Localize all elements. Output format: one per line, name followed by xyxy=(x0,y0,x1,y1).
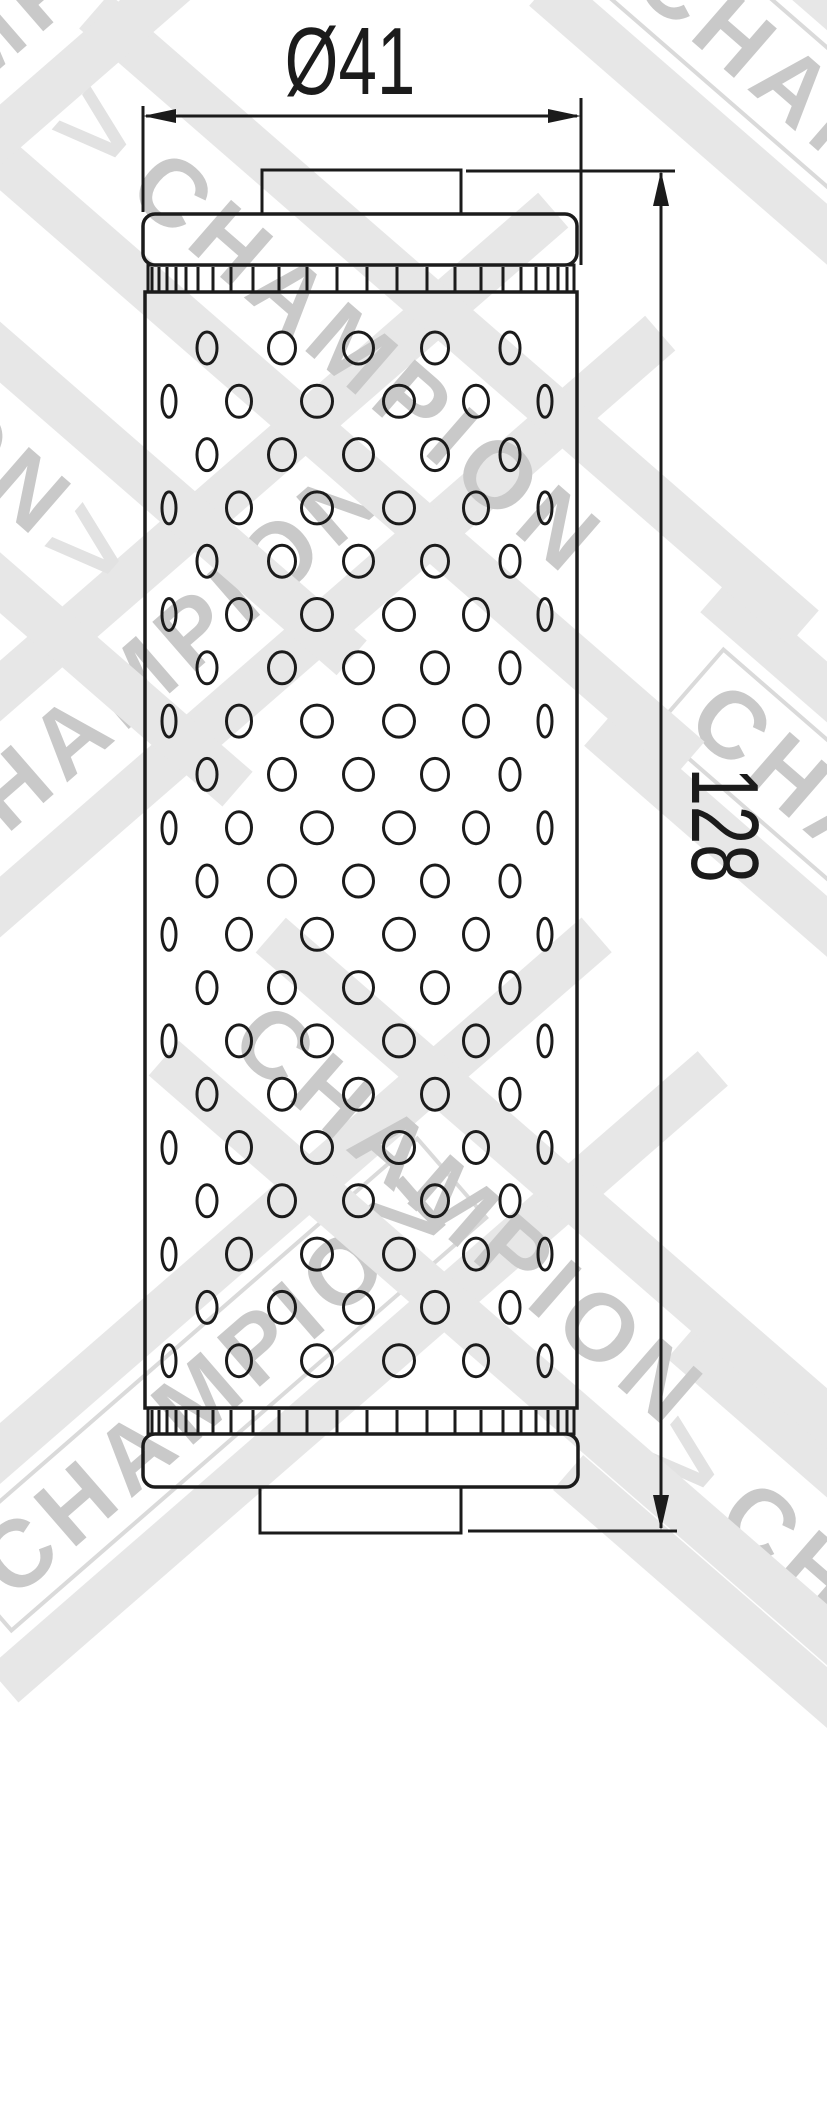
top-nipple-outline xyxy=(262,170,461,214)
height-value: 128 xyxy=(676,767,772,882)
perforation-holes xyxy=(162,332,552,1377)
top-end-cap-outline xyxy=(143,214,577,265)
bottom-end-cap-outline xyxy=(143,1434,578,1487)
diameter-value: Ø41 xyxy=(285,14,416,110)
filter-body-outline xyxy=(145,292,577,1408)
arrow-right-icon xyxy=(548,109,581,123)
arrow-down-icon xyxy=(653,1495,669,1530)
dimension-arrowheads xyxy=(143,109,669,1530)
oil-filter-technical-drawing: CHAMPION CHAMPION >CHAMPION CHAMPION CHA… xyxy=(0,0,827,1600)
arrow-up-icon xyxy=(653,171,669,206)
bottom-crimp-ribs xyxy=(152,1410,567,1433)
bottom-nipple-outline xyxy=(260,1487,461,1533)
top-crimp-ribs xyxy=(152,267,567,291)
arrow-left-icon xyxy=(143,109,176,123)
